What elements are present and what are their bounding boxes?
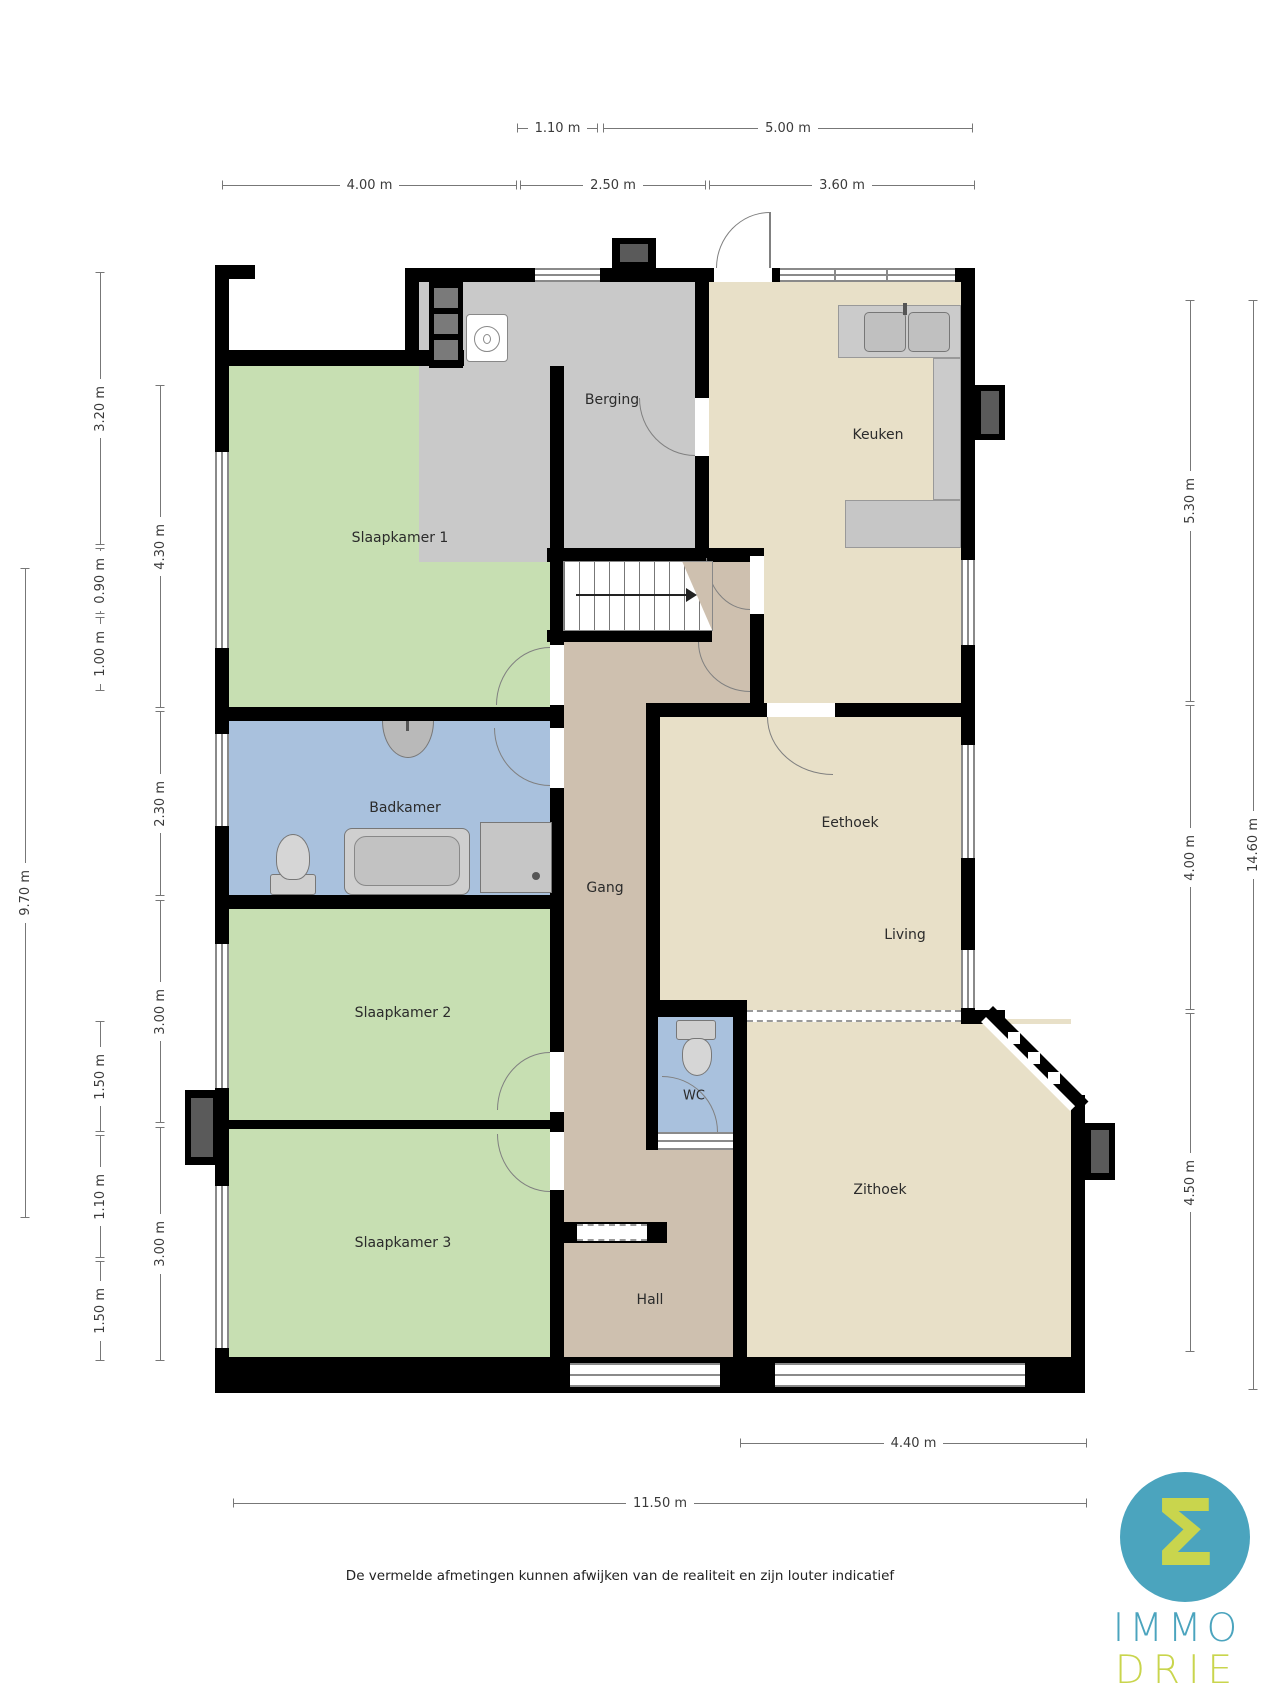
dim-label: 2.30 m [153,781,168,827]
wall [550,366,564,1357]
room-label-living: Living [884,927,926,943]
window [215,944,229,1088]
dim-top-1: 1.10 m [517,121,598,135]
dim-left-mid-6: 1.50 m [93,1261,107,1361]
logo-word-drie: DRIE [1085,1648,1270,1693]
sink-basin [864,312,906,352]
door-leaf [769,212,771,268]
dim-label: 4.00 m [347,178,393,193]
dim-label: 1.50 m [93,1288,108,1334]
dim-left-mid-4: 1.50 m [93,1021,107,1132]
room-label-eethoek: Eethoek [821,815,878,831]
kitchen-cabinet [845,500,961,548]
window [215,734,229,826]
room-label-wc: WC [683,1089,705,1104]
door-opening [550,1132,564,1190]
sigma-icon: Σ [1154,1488,1217,1580]
dim-label: 1.00 m [93,631,108,677]
logo-word-immo: IMMO [1085,1606,1270,1651]
floor-zithoek [747,1019,1071,1357]
dim-bottom-2: 11.50 m [233,1496,1087,1510]
room-label-slaapkamer2: Slaapkamer 2 [355,1005,452,1021]
window [961,950,975,1008]
dim-left-mid-2: 0.90 m [93,548,107,614]
dim-label: 1.50 m [93,1054,108,1100]
chimney-inner [620,244,648,262]
dim-label: 1.10 m [535,121,581,136]
dim-left-outer: 9.70 m [18,568,32,1218]
wall [229,1120,564,1129]
window-mullion [834,269,836,281]
door-opening [550,728,564,788]
room-label-gang: Gang [586,880,623,896]
wall [646,1000,747,1017]
fireplace-step [1008,1032,1020,1044]
window [535,268,600,282]
wall [405,268,419,366]
floor-keuken [764,548,961,703]
bathtub-inner [354,836,460,886]
floor-gang [564,703,646,1222]
toilet-tank [676,1020,716,1040]
stairs-arrow-line [576,594,688,596]
dim-right-inner-1: 5.30 m [1183,300,1197,702]
stairs-arrow-head [686,588,697,602]
room-label-zithoek: Zithoek [853,1182,906,1198]
dim-label: 2.50 m [590,178,636,193]
vent-square [434,314,458,334]
dim-label: 1.10 m [93,1174,108,1220]
wall [547,630,712,642]
door-opening [550,645,564,705]
wall [646,717,660,1017]
disclaimer-text: De vermelde afmetingen kunnen afwijken v… [160,1568,1080,1584]
dim-label: 4.30 m [153,524,168,570]
wall [961,282,975,1010]
door-opening [695,398,709,456]
window [780,268,955,282]
dim-right-outer: 14.60 m [1246,300,1260,1390]
dim-top-5: 3.60 m [709,178,975,192]
dim-label: 9.70 m [18,870,33,916]
dim-left-inner-3: 3.00 m [153,900,167,1123]
dim-label: 11.50 m [633,1496,687,1511]
shower-symbol [480,822,552,893]
window [215,452,229,648]
window [775,1363,1025,1387]
window-mullion [886,269,888,281]
immo-drie-logo: Σ [1120,1472,1250,1602]
sink-basin [908,312,950,352]
window [570,1363,720,1387]
open-boundary-dashed [747,1010,961,1022]
wall [1071,1095,1085,1393]
sink-tap [903,303,907,315]
dim-label: 4.40 m [891,1436,937,1451]
dim-top-2: 5.00 m [603,121,973,135]
dim-left-mid-5: 1.10 m [93,1135,107,1258]
toilet-bowl [276,834,310,880]
dim-label: 3.20 m [93,386,108,432]
door-arc [716,212,770,268]
dim-bottom-1: 4.40 m [740,1436,1087,1450]
window [215,1186,229,1348]
fireplace-step [1048,1072,1060,1084]
dim-right-inner-3: 4.50 m [1183,1013,1197,1352]
bath-sink-tap [406,721,409,731]
dim-label: 4.50 m [1183,1160,1198,1206]
chimney-inner [1091,1130,1109,1173]
vent-square [434,340,458,360]
washer-dot [483,334,491,344]
wc-door [658,1132,733,1150]
door-opening [767,703,835,717]
dim-left-mid-1: 3.20 m [93,272,107,545]
wall [215,707,564,721]
dim-left-mid-3: 1.00 m [93,617,107,691]
dim-top-3: 4.00 m [222,178,517,192]
fireplace-step [1028,1052,1040,1064]
dim-top-4: 2.50 m [520,178,706,192]
front-door [577,1224,647,1241]
dim-label: 4.00 m [1183,835,1198,881]
kitchen-counter [933,358,961,500]
dim-left-inner-2: 2.30 m [153,711,167,896]
dim-label: 0.90 m [93,558,108,604]
chimney-inner [191,1098,213,1157]
dim-label: 5.00 m [765,121,811,136]
room-label-badkamer: Badkamer [369,800,441,816]
dim-left-inner-4: 3.00 m [153,1127,167,1361]
dim-label: 14.60 m [1246,818,1261,872]
room-label-keuken: Keuken [852,427,903,443]
room-label-hall: Hall [637,1292,664,1308]
window [961,745,975,858]
dim-label: 3.00 m [153,1221,168,1267]
dim-label: 5.30 m [1183,478,1198,524]
floorplan-page: Berging Keuken Slaapkamer 1 Badkamer Gan… [0,0,1280,1707]
room-label-slaapkamer1: Slaapkamer 1 [352,530,449,546]
dim-left-inner-1: 4.30 m [153,385,167,708]
vent-square [434,288,458,308]
chimney-inner [981,391,999,434]
toilet-bowl [682,1038,712,1076]
wall [215,265,255,279]
room-label-berging: Berging [585,392,639,408]
dim-right-inner-2: 4.00 m [1183,705,1197,1010]
wall [215,350,464,366]
door-opening [714,268,772,282]
door-opening [750,556,764,614]
wall [733,1017,747,1357]
dim-label: 3.60 m [819,178,865,193]
door-opening [550,1052,564,1112]
wall [215,895,564,909]
shower-drain [532,872,540,880]
wall [646,1017,658,1150]
room-label-slaapkamer3: Slaapkamer 3 [355,1235,452,1251]
window [961,560,975,645]
dim-label: 3.00 m [153,989,168,1035]
